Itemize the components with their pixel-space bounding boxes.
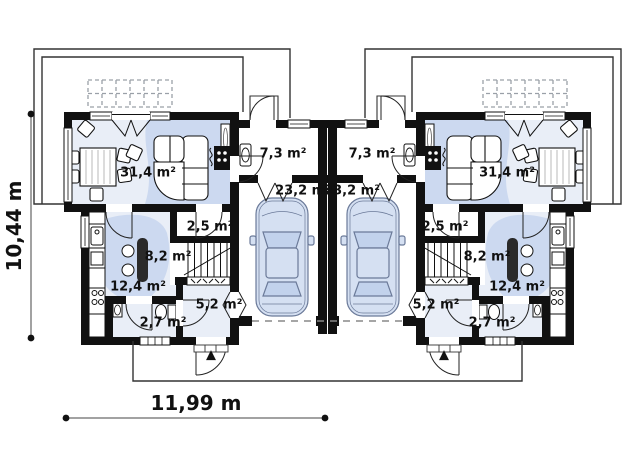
floor-plan-page: 31,4 m² 7,3 m² 23,2 m² 2,5 m² 8,2 m² 12,… [0, 0, 640, 473]
dimension-width [63, 415, 329, 422]
entrance-arrow-icon-left: ▲ [206, 349, 216, 362]
room-label-garage-right: 23,2 m² [324, 184, 380, 199]
room-label-entry-right: 7,3 m² [349, 147, 396, 162]
room-label-vestibule-right: 5,2 m² [413, 298, 460, 313]
room-label-hall-left: 8,2 m² [145, 250, 192, 265]
dimension-label-height: 10,44 m [2, 180, 26, 271]
room-label-wc-right: 2,7 m² [469, 316, 516, 331]
entrance-arrow-icon-right: ▲ [439, 349, 449, 362]
room-label-hall-right: 8,2 m² [464, 250, 511, 265]
room-label-living-left: 31,4 m² [120, 166, 176, 181]
dimension-label-width: 11,99 m [150, 391, 241, 415]
room-label-wc-left: 2,7 m² [140, 316, 187, 331]
room-label-vestibule-left: 5,2 m² [196, 298, 243, 313]
room-label-pantry-right: 2,5 m² [422, 220, 469, 235]
floor-plan-drawing [0, 0, 640, 473]
porch-outline [133, 341, 522, 381]
room-label-living-right: 31,4 m² [479, 166, 535, 181]
room-label-kitchen-left: 12,4 m² [110, 280, 166, 295]
room-label-entry-left: 7,3 m² [260, 147, 307, 162]
room-label-kitchen-right: 12,4 m² [489, 280, 545, 295]
room-label-pantry-left: 2,5 m² [187, 220, 234, 235]
room-label-garage-left: 23,2 m² [275, 184, 331, 199]
